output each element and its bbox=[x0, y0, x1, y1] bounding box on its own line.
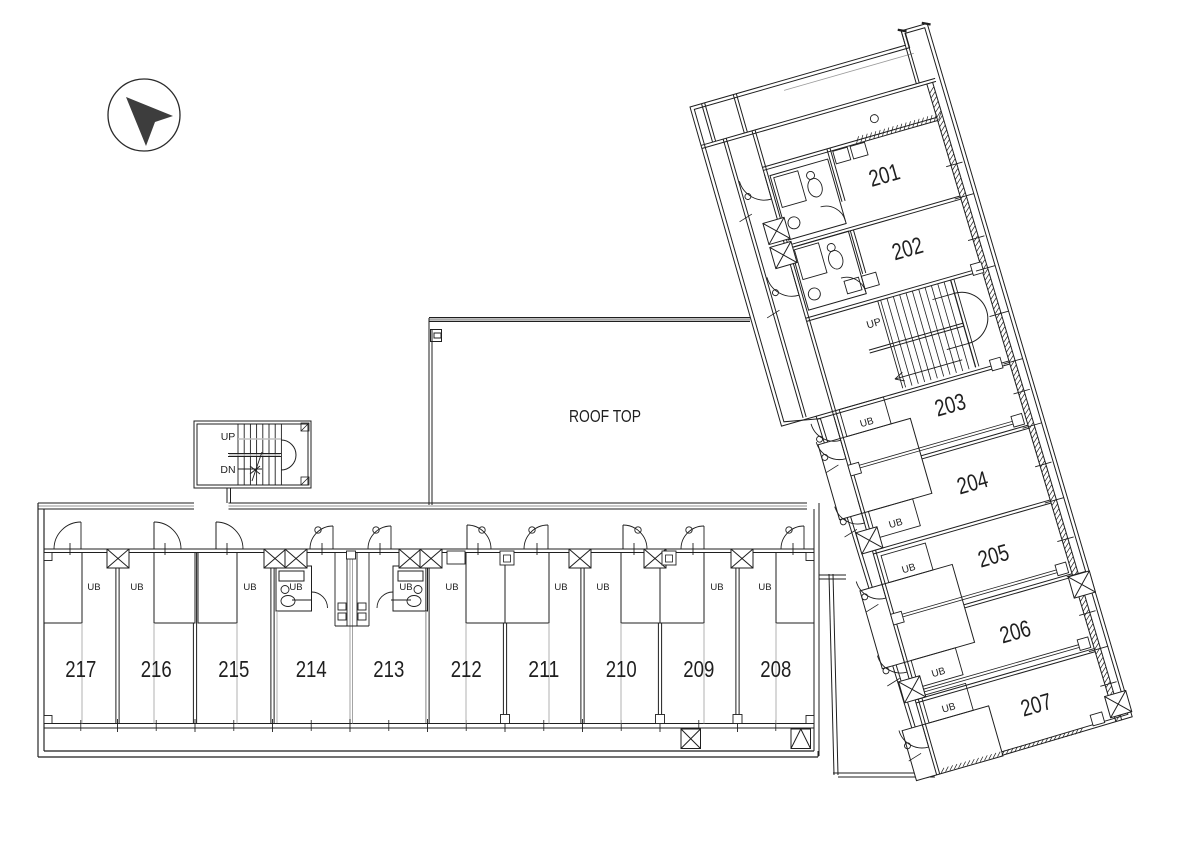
svg-text:213: 213 bbox=[373, 656, 404, 682]
svg-text:UB: UB bbox=[445, 582, 458, 593]
svg-text:ROOF TOP: ROOF TOP bbox=[569, 406, 641, 426]
svg-text:UB: UB bbox=[758, 582, 771, 593]
svg-text:214: 214 bbox=[296, 656, 327, 682]
svg-text:UB: UB bbox=[243, 582, 256, 593]
svg-text:UP: UP bbox=[221, 431, 236, 443]
svg-text:215: 215 bbox=[218, 656, 249, 682]
svg-text:210: 210 bbox=[606, 656, 637, 682]
svg-text:DN: DN bbox=[220, 464, 235, 476]
svg-text:212: 212 bbox=[451, 656, 482, 682]
svg-text:209: 209 bbox=[683, 656, 714, 682]
svg-text:UB: UB bbox=[554, 582, 567, 593]
svg-text:UB: UB bbox=[87, 582, 100, 593]
svg-text:217: 217 bbox=[65, 656, 96, 682]
svg-text:UB: UB bbox=[399, 582, 412, 593]
svg-text:211: 211 bbox=[528, 656, 559, 682]
svg-text:216: 216 bbox=[141, 656, 172, 682]
svg-text:UB: UB bbox=[289, 582, 302, 593]
svg-text:UB: UB bbox=[596, 582, 609, 593]
svg-text:UB: UB bbox=[130, 582, 143, 593]
svg-text:UB: UB bbox=[710, 582, 723, 593]
svg-text:208: 208 bbox=[760, 656, 791, 682]
